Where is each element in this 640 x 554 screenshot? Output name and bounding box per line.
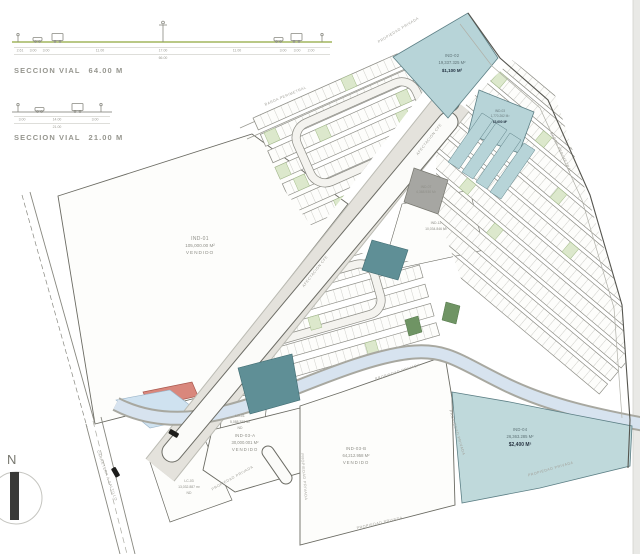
dim: 3.00 [43, 49, 50, 53]
dim: 3.00 [92, 118, 99, 122]
parcel-ind12-area: 10,034.846 M² [425, 227, 448, 231]
parcel-ind02-price: $1,100 M² [442, 68, 463, 73]
dim-total: 66.00 [159, 56, 168, 60]
parcel-ind03-id: IND-03 [495, 109, 505, 113]
parcel-ind01-id: IND-01 [191, 236, 209, 242]
parcel-lo01-area: 5,088.353 M² [230, 420, 251, 424]
dim: 3.00 [19, 118, 26, 122]
dim: 2.61 [17, 49, 24, 53]
dim: 3.00 [30, 49, 37, 53]
parcel-ind03-price: $3,600 M² [493, 120, 507, 124]
parcel-ind07-area: 4,368.930 M² [416, 190, 437, 194]
parcel-ind02-id: IND-02 [445, 53, 460, 58]
dim: 3.00 [280, 49, 287, 53]
parcel-ind03a-area: 30,000.001 M² [231, 440, 259, 445]
parcel-ind03-area: 1,770.262 M² [491, 114, 510, 118]
site-plan-screenshot: N 2.61 3.00 3.00 11.00 17.00 11.00 3.00 … [0, 0, 640, 554]
section-64-title: SECCION VIAL64.00 M [14, 66, 123, 75]
dim: 2.00 [308, 49, 315, 53]
dim: 11.00 [96, 49, 105, 53]
dim: 3.00 [294, 49, 301, 53]
parcel-ind01-status: VENDIDO [186, 250, 214, 256]
section-21-title: SECCION VIAL21.00 M [14, 133, 123, 142]
parcel-ind03b-id: IND-03-B [346, 446, 367, 451]
dim: 11.00 [233, 49, 242, 53]
parcel-lo01-note: ND [238, 426, 243, 430]
master-plan-drawing: N 2.61 3.00 3.00 11.00 17.00 11.00 3.00 … [0, 0, 640, 554]
parcel-ind03b-area: 64,212.958 M² [342, 453, 370, 458]
dim: 14.00 [53, 118, 62, 122]
parcel-ind04-price: $2,400 M² [509, 442, 532, 448]
parcel-ind02-area: 19,337.325 M² [438, 60, 466, 65]
dim-total: 21.00 [53, 125, 62, 129]
parcel-lc03-note: ND [187, 491, 192, 495]
dim: 17.00 [159, 49, 168, 53]
parcel-ind04-area: 26,363.285 M² [506, 434, 534, 439]
parcel-ind12-id: IND-12 [431, 221, 442, 225]
parcel-lc03-area: 13,032.887 m² [178, 485, 201, 489]
parcel-ind03a-id: IND-03-A [235, 433, 256, 438]
right-margin-strip [633, 0, 640, 554]
parcel-lc03-id: LC-03 [184, 479, 193, 483]
parcel-ind03b-status: VENDIDO [343, 460, 369, 465]
parcel-ind07-id: IND-07 [421, 185, 432, 189]
parcel-ind01-area: 105,000.00 M² [185, 243, 215, 248]
parcel-ind04-id: IND-04 [513, 427, 528, 432]
parcel-lo01-id: LO-01 [235, 414, 245, 418]
north-label: N [7, 452, 16, 467]
parcel-ind03a-status: VENDIDO [232, 447, 258, 452]
